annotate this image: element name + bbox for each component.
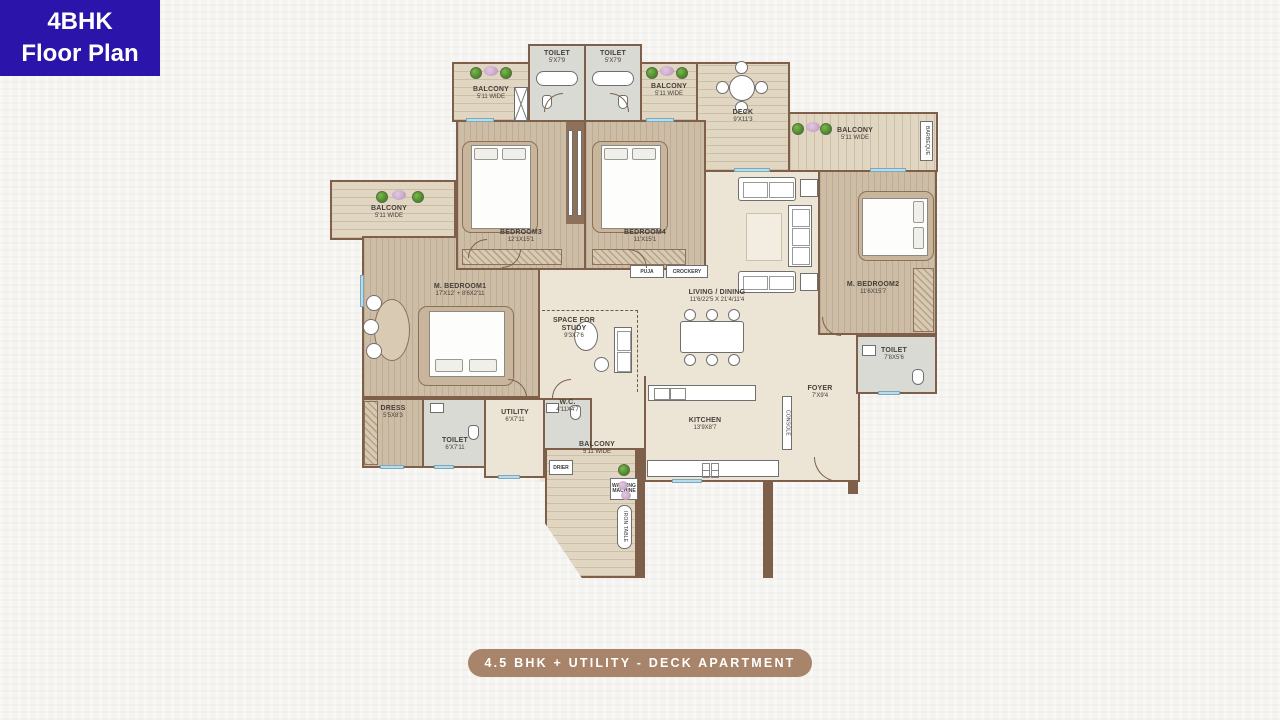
- badge-line1: 4BHK: [0, 6, 160, 38]
- sofa: [738, 271, 796, 293]
- flower-icon: [484, 66, 498, 76]
- toilet-wc: [912, 369, 924, 385]
- toilet-wc: [570, 405, 581, 420]
- plant-icon: [792, 123, 804, 135]
- barbeque-counter: BARBEQUE: [920, 121, 933, 161]
- double-bed-bedroom3: [462, 141, 538, 233]
- side-table: [800, 273, 818, 291]
- shaft-cross-icon: [515, 88, 527, 120]
- window: [878, 391, 900, 395]
- washbasin: [430, 403, 444, 413]
- window: [360, 275, 364, 307]
- dining-chair: [684, 309, 696, 321]
- room-balcony-right: [788, 112, 938, 172]
- flower-icon: [618, 481, 628, 490]
- plant-icon: [646, 67, 658, 79]
- iron-table-label: IRON TABLE: [622, 511, 627, 542]
- wardrobe-dress: [364, 401, 378, 465]
- dining-table: [680, 321, 744, 353]
- room-balcony-left: [330, 180, 456, 240]
- washbasin: [546, 403, 559, 413]
- flower-icon: [806, 122, 820, 132]
- duct-shaft: [514, 87, 528, 121]
- dining-chair: [706, 309, 718, 321]
- drier: DRIER: [549, 460, 573, 475]
- deck-chair: [735, 101, 748, 114]
- deck-table: [729, 75, 755, 101]
- plant-icon: [618, 464, 630, 476]
- armchair-row: [788, 205, 812, 267]
- console-table: CONSOLE: [782, 396, 792, 450]
- caption-pill: 4.5 BHK + UTILITY - DECK APARTMENT: [468, 649, 812, 677]
- room-utility: [484, 398, 545, 478]
- window: [466, 118, 494, 122]
- bathtub: [536, 71, 578, 86]
- plant-icon: [676, 67, 688, 79]
- kitchen-counter: [648, 385, 756, 401]
- title-badge: 4BHK Floor Plan: [0, 0, 160, 76]
- plant-icon: [412, 191, 424, 203]
- iron-table: IRON TABLE: [617, 505, 632, 549]
- toilet-wc: [468, 425, 479, 440]
- kitchen-sink: [654, 388, 670, 400]
- wall-stub: [763, 480, 773, 578]
- dining-chair: [706, 354, 718, 366]
- window: [870, 168, 906, 172]
- dining-chair: [728, 309, 740, 321]
- kitchen-sink: [670, 388, 686, 400]
- kitchen-counter: [647, 460, 779, 477]
- wall-stub: [848, 480, 858, 494]
- caption-text: 4.5 BHK + UTILITY - DECK APARTMENT: [484, 656, 795, 670]
- console-label: CONSOLE: [785, 410, 790, 436]
- crockery-cabinet: CROCKERY: [666, 265, 708, 278]
- plant-icon: [500, 67, 512, 79]
- lounge-chair: [366, 295, 382, 311]
- washbasin: [862, 345, 876, 356]
- dining-chair: [728, 354, 740, 366]
- window: [498, 475, 520, 479]
- kitchen-hob: [702, 470, 710, 478]
- bathtub: [592, 71, 634, 86]
- flower-icon: [621, 491, 631, 500]
- kitchen-hob: [711, 470, 719, 478]
- puja-label: PUJA: [640, 269, 653, 275]
- crockery-label: CROCKERY: [673, 269, 701, 275]
- wardrobe-door: [577, 130, 582, 216]
- window: [380, 465, 404, 469]
- deck-chair: [735, 61, 748, 74]
- sofa: [738, 177, 796, 201]
- wardrobe-door: [568, 130, 573, 216]
- deck-chair: [755, 81, 768, 94]
- living-rug: [746, 213, 782, 261]
- window: [434, 465, 454, 469]
- double-bed-bedroom4: [592, 141, 668, 233]
- drier-label: DRIER: [553, 465, 569, 471]
- plant-icon: [820, 123, 832, 135]
- plant-icon: [470, 67, 482, 79]
- window: [672, 479, 702, 483]
- room-toilet-mbed2: [856, 335, 937, 394]
- wardrobe-m-bedroom2: [913, 268, 934, 332]
- flower-icon: [660, 66, 674, 76]
- floor-plan: PUJA CROCKERY CONSOLE BARBEQUE DRIER WAS…: [330, 33, 942, 585]
- dining-chair: [684, 354, 696, 366]
- wardrobe-column: [566, 122, 584, 224]
- badge-line2: Floor Plan: [0, 38, 160, 70]
- study-desk: [614, 327, 632, 373]
- side-table: [800, 179, 818, 197]
- study-chair: [594, 357, 609, 372]
- plant-icon: [376, 191, 388, 203]
- study-pouf: [574, 321, 598, 351]
- barbeque-label: BARBEQUE: [924, 126, 929, 155]
- deck-chair: [716, 81, 729, 94]
- double-bed-m-bedroom2: [858, 191, 934, 261]
- window: [646, 118, 674, 122]
- lounge-chair: [363, 319, 379, 335]
- flower-icon: [392, 190, 406, 200]
- lounge-chair: [366, 343, 382, 359]
- window: [734, 168, 770, 172]
- double-bed-m-bedroom1: [418, 306, 514, 386]
